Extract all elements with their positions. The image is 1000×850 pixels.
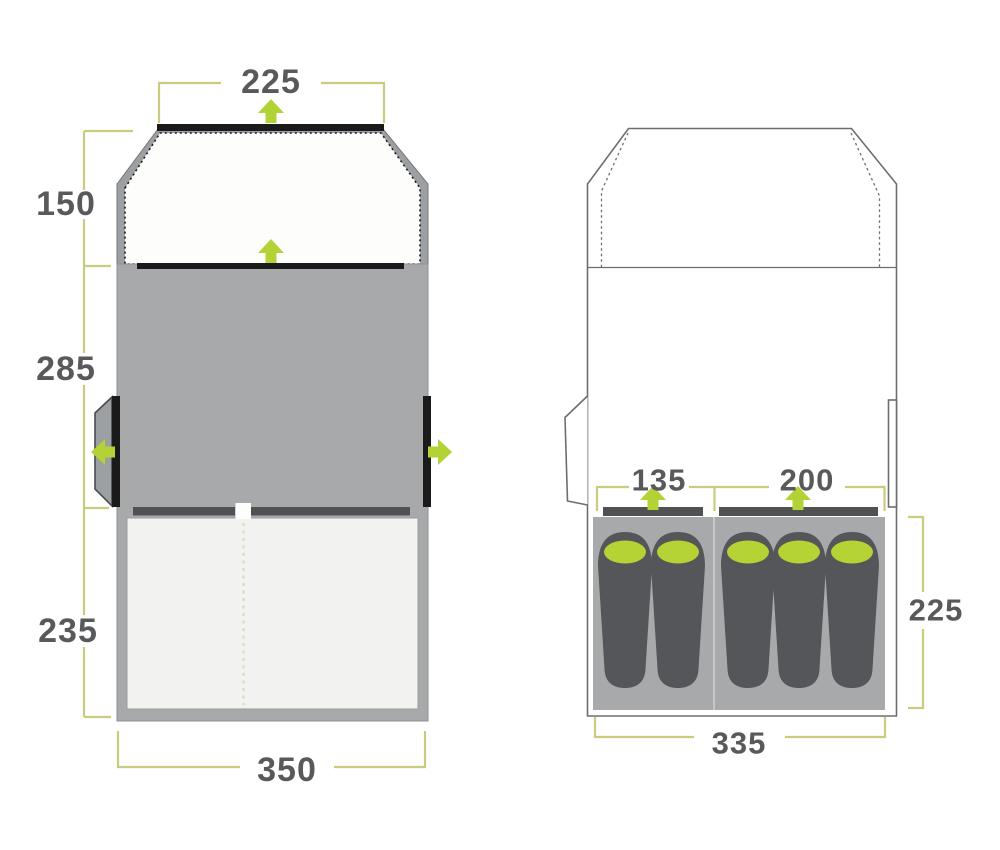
bedroom-door-bar-left: [133, 507, 235, 516]
bedroom-door-bar-right: [251, 507, 410, 516]
sleeping-bags: [598, 532, 879, 688]
dim-label-living-depth: 285: [36, 350, 96, 388]
bedroom-door-notch: [704, 503, 720, 517]
front-entrance-bar: [157, 124, 384, 131]
side-door-flap-outline: [565, 396, 588, 505]
bedroom-interior: [127, 518, 418, 709]
floorplan-svg: 225 150 285 235 350: [0, 0, 1000, 850]
right-floorplan: [565, 129, 897, 717]
entrance-arrow-right-icon: [428, 439, 452, 465]
dim-label-front-width: 225: [241, 63, 301, 101]
sleeping-bag-pillow: [657, 541, 699, 564]
dim-label-bedroom-depth: 225: [909, 593, 964, 628]
dim-label-left-bedroom-width: 135: [632, 463, 687, 498]
tent-floorplan-canvas: 225 150 285 235 350: [0, 0, 1000, 850]
bedroom-door-notch: [236, 503, 252, 519]
entrance-arrow-up-front-icon: [258, 99, 284, 123]
dim-label-porch-depth: 150: [36, 185, 96, 223]
dim-label-total-width: 350: [257, 751, 317, 789]
sleeping-bag-pillow: [831, 541, 873, 564]
living-entrance-bar: [137, 263, 404, 269]
dim-label-right-bedroom-width: 200: [780, 463, 835, 498]
dim-label-bedroom-depth: 235: [38, 612, 98, 650]
sleeping-bag-pillow: [778, 541, 820, 564]
sleeping-bag-pillow: [727, 541, 769, 564]
dim-label-inner-width: 335: [712, 726, 767, 761]
side-door-outline-right: [889, 400, 897, 507]
left-floorplan: [91, 99, 452, 721]
sleeping-bag-pillow: [604, 541, 646, 564]
